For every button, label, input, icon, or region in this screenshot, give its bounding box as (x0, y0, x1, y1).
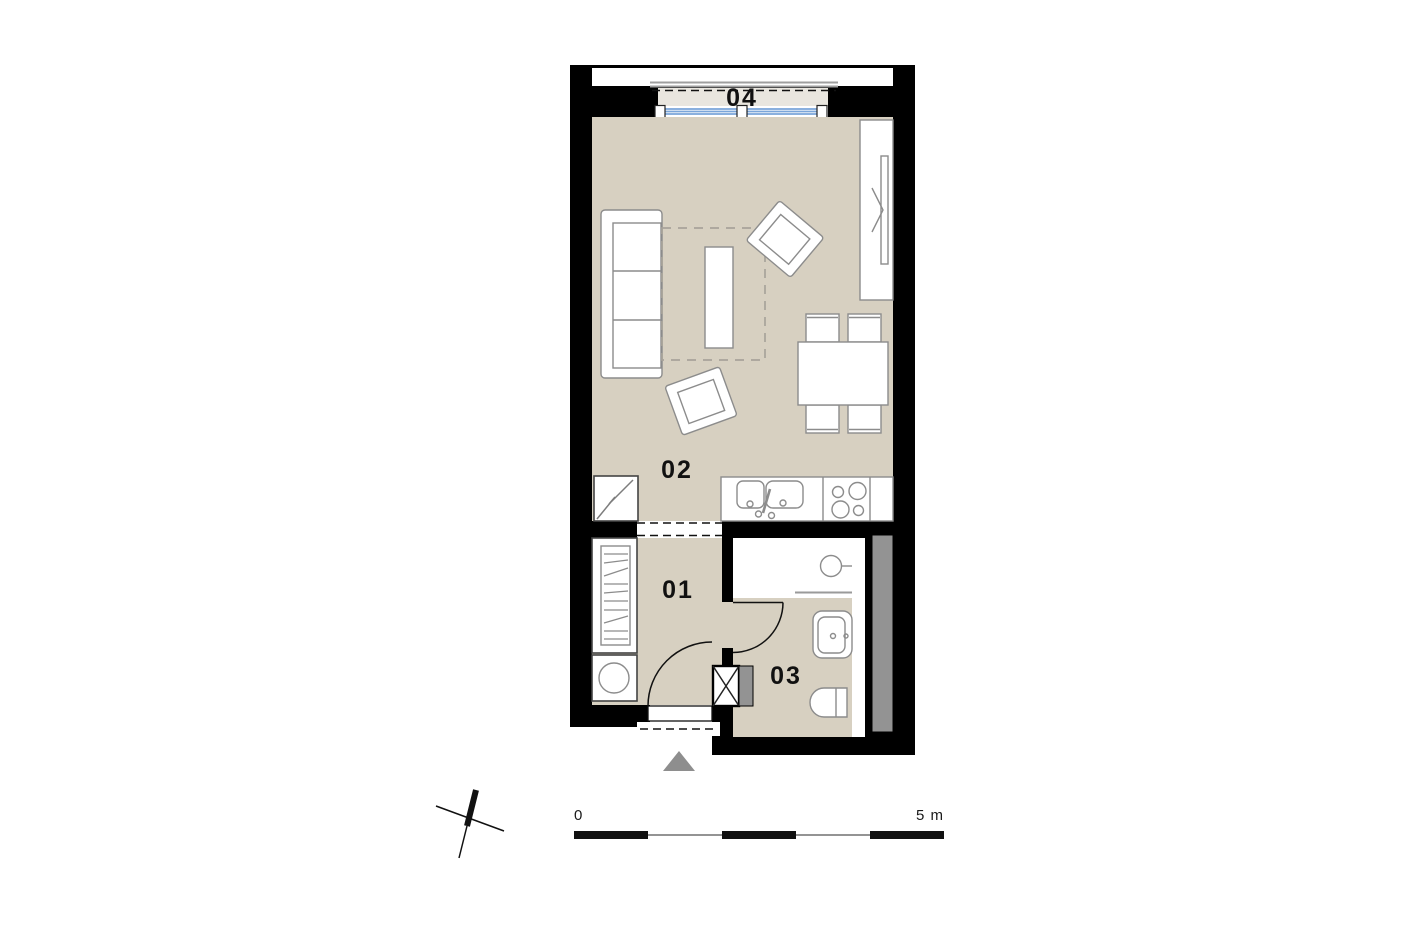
wall-hall-bath-lower (722, 648, 733, 660)
floorplan-canvas: 04 (0, 0, 1420, 935)
duct-box-gray (739, 666, 753, 706)
electrical-box (594, 476, 638, 521)
dining-chair (848, 314, 881, 342)
room-label-03: 03 (770, 662, 802, 690)
entrance-door-leaf (648, 706, 712, 721)
scale-bar-segment (574, 831, 648, 839)
wall-left (570, 65, 592, 727)
window-frame-left (655, 106, 665, 119)
counter-outline (721, 477, 893, 521)
north-arrow (436, 790, 504, 858)
shaft-boxes (713, 666, 753, 706)
kitchen-counter (721, 477, 893, 521)
scale-bar: 0 5 m (574, 807, 944, 839)
installation-wall (852, 538, 865, 737)
hall-closet (592, 538, 637, 653)
scale-bar-segment (870, 831, 944, 839)
duct-shaft-gray (872, 535, 893, 732)
washing-machine (592, 655, 637, 701)
entrance-arrow-triangle (663, 751, 695, 771)
window-frame-middle (737, 106, 747, 119)
shower-tray (733, 538, 852, 598)
living-room-02: 02 (592, 117, 893, 538)
dining-chair (806, 314, 839, 342)
room-label-01: 01 (662, 576, 694, 604)
shower (733, 538, 852, 598)
bath-door-gap (722, 602, 733, 648)
scale-zero-label: 0 (574, 807, 583, 824)
sofa (601, 210, 662, 378)
window-frame-right (817, 106, 827, 119)
coffee-table (705, 247, 733, 348)
washbasin (813, 611, 852, 658)
annotations: 0 5 m (436, 751, 944, 858)
wardrobe (860, 120, 893, 300)
scale-max-label: 5 m (916, 807, 944, 824)
toilet-bowl (810, 688, 847, 717)
room-label-02: 02 (661, 456, 693, 484)
north-arrow-thin-line (459, 826, 467, 858)
wall-hall-bath-upper (722, 538, 733, 602)
scale-bar-segment (722, 831, 796, 839)
dining-table (798, 342, 888, 405)
sofa-outline (601, 210, 662, 378)
toilet (810, 688, 847, 717)
floorplan-drawing: 04 (0, 0, 1420, 935)
